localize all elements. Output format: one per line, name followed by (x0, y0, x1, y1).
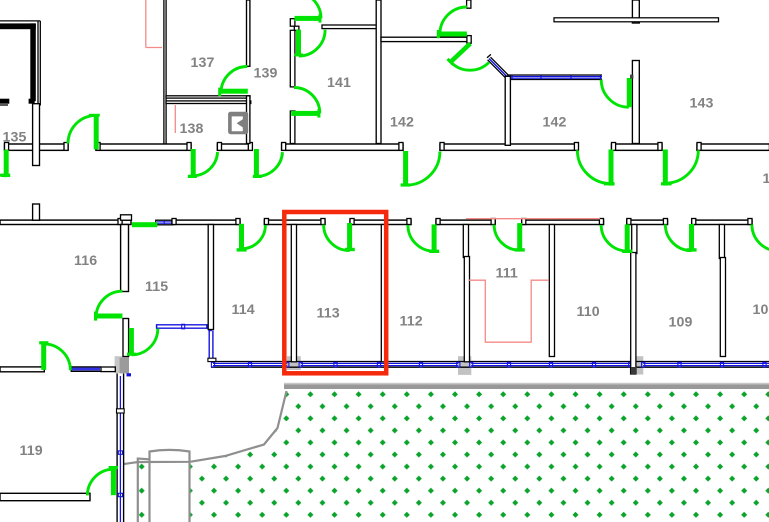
svg-text:14: 14 (763, 171, 769, 187)
svg-text:137: 137 (191, 55, 215, 71)
svg-text:141: 141 (327, 75, 351, 91)
svg-text:109: 109 (669, 315, 693, 331)
svg-text:143: 143 (690, 96, 714, 112)
svg-text:135: 135 (3, 129, 27, 145)
svg-text:114: 114 (232, 302, 255, 318)
svg-text:110: 110 (577, 304, 600, 320)
svg-text:115: 115 (145, 279, 168, 295)
svg-text:113: 113 (317, 306, 340, 322)
svg-text:112: 112 (400, 314, 423, 330)
svg-text:116: 116 (74, 253, 97, 269)
svg-text:139: 139 (254, 66, 278, 82)
svg-text:142: 142 (543, 115, 567, 131)
svg-text:108: 108 (753, 302, 769, 318)
svg-text:142: 142 (390, 115, 414, 131)
svg-text:111: 111 (496, 266, 518, 282)
svg-text:119: 119 (20, 443, 43, 459)
svg-text:138: 138 (180, 121, 204, 137)
